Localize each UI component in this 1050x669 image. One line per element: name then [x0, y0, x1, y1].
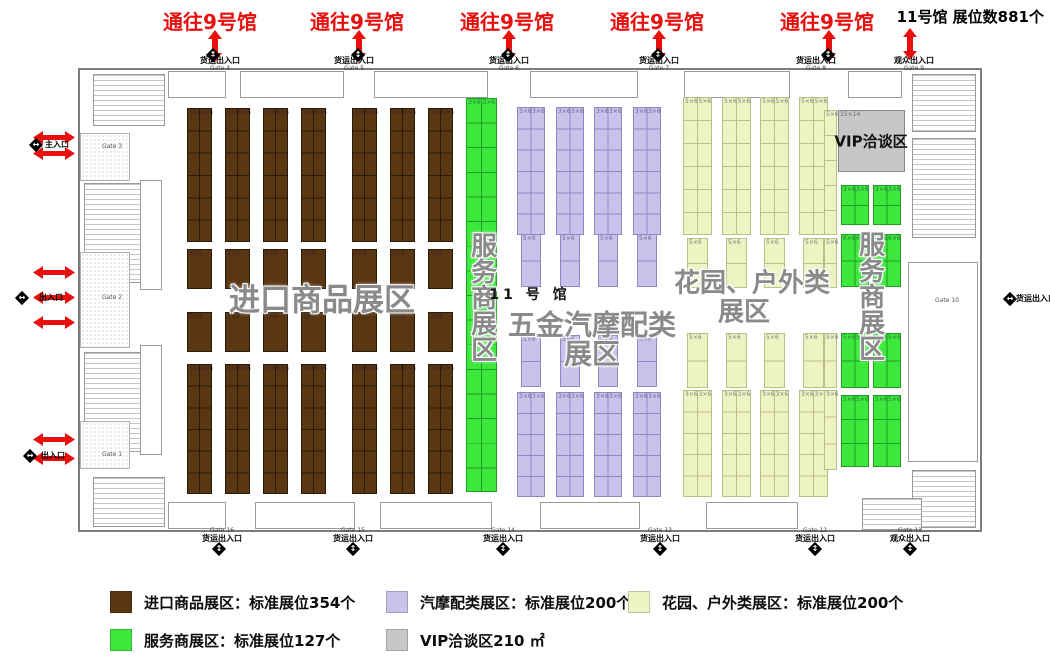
- gate-diamond-icon: ↕: [496, 542, 510, 556]
- booth-size-label: 5×6: [888, 335, 901, 341]
- booth-block: 3×63×6: [225, 364, 250, 494]
- wall-structure: [540, 502, 640, 529]
- booth-size-label: 5×6: [826, 112, 839, 118]
- gate-number: Gate 3: [102, 144, 122, 150]
- gate-diamond-icon: ↔: [1003, 292, 1017, 306]
- booth-size-label: 5×6: [856, 397, 869, 403]
- booth-size-label: 3×6: [738, 392, 751, 398]
- booth-size-label: 3×6: [558, 109, 571, 115]
- wall-structure: [140, 345, 162, 455]
- booth-size-label: 5×6: [815, 99, 828, 105]
- booth-block: 5×6: [803, 333, 824, 388]
- zone-label: 进口商品展区: [229, 285, 415, 318]
- booth-block: 5×6: [637, 335, 657, 387]
- booth-size-label: 5×6: [689, 240, 702, 246]
- zone-label: 花园、户外类: [674, 270, 830, 297]
- booth-block: 3×63×6: [301, 364, 326, 494]
- booth-size-label: 5×6: [766, 240, 779, 246]
- booth-size-label: 5×6: [888, 397, 901, 403]
- wall-structure: [848, 71, 902, 98]
- booth-size-label: 5×6: [523, 236, 536, 242]
- gate-number: Gate 6: [499, 66, 519, 72]
- booth-size-label: 3×6: [315, 110, 328, 116]
- booth-size-label: 3×9: [189, 314, 202, 320]
- booth-block: 3×63×6: [633, 392, 661, 497]
- zone-label: 服务商展区: [855, 231, 882, 361]
- zone-label: VIP洽谈区: [834, 131, 907, 152]
- booth-block: 3×63×6: [760, 390, 789, 497]
- booth-size-label: 5×6: [826, 240, 839, 246]
- wall-structure: [93, 477, 165, 527]
- booth-size-label: 3×6: [571, 394, 584, 400]
- booth-block: 3×63×6: [187, 364, 212, 494]
- booth-block: 5×65×6: [760, 97, 789, 235]
- booth-size-label: 3×6: [558, 394, 571, 400]
- wall-structure: [912, 138, 976, 238]
- booth-block: 3×63×6: [225, 108, 250, 242]
- booth-size-label: 3×9: [392, 251, 405, 257]
- booth-size-label: 3×9: [354, 251, 367, 257]
- booth-block: 3×63×6: [390, 364, 415, 494]
- legend-label: VIP洽谈区210 ㎡: [420, 630, 545, 651]
- booth-size-label: 5×6: [826, 335, 839, 341]
- booth-size-label: 3×6: [776, 392, 789, 398]
- booth-block: 3×63×6: [263, 108, 288, 242]
- booth-block: 3×63×6: [683, 390, 712, 497]
- gate-number: Gate 4: [210, 66, 230, 72]
- booth-block: 5×6: [824, 333, 837, 388]
- gate-label: 货运出入口: [640, 535, 680, 543]
- booth-size-label: 5×6: [685, 99, 698, 105]
- gate-label: 观众出入口: [894, 57, 934, 65]
- booth-size-label: 3×9: [265, 251, 278, 257]
- gate-number: Gate 2: [102, 295, 122, 301]
- booth-size-label: 3×6: [762, 392, 775, 398]
- booth-size-label: 3×6: [648, 394, 661, 400]
- booth-size-label: 5×6: [801, 99, 814, 105]
- booth-block: 3×63×6: [556, 392, 584, 497]
- booth-size-label: 15×14: [840, 112, 860, 118]
- gate-diamond-icon: ↔: [15, 291, 29, 305]
- booth-size-label: 5×6: [843, 397, 856, 403]
- legend-label: 花园、户外类展区：标准展位200个: [662, 592, 903, 613]
- booth-size-label: 3×6: [483, 100, 496, 106]
- legend-item: 服务商展区：标准展位127个: [110, 629, 340, 651]
- booth-size-label: 3×6: [826, 392, 839, 398]
- booth-size-label: 5×6: [875, 397, 888, 403]
- booth-size-label: 3×6: [635, 394, 648, 400]
- gate-label: 货运出入口: [639, 57, 679, 65]
- legend-swatch-service: [110, 629, 132, 651]
- gate-hatch: [80, 421, 130, 469]
- wall-structure: [706, 502, 798, 529]
- legend-swatch-garden: [628, 591, 650, 613]
- wall-structure: [255, 502, 355, 529]
- booth-block: 3×63×6: [428, 108, 453, 242]
- legend-item: 进口商品展区：标准展位354个: [110, 591, 355, 613]
- gate-diamond-icon: ↕: [808, 542, 822, 556]
- booth-size-label: 3×6: [532, 109, 545, 115]
- booth-size-label: 3×6: [519, 109, 532, 115]
- booth-block: 3×63×6: [352, 108, 377, 242]
- booth-size-label: 5×6: [699, 99, 712, 105]
- wall-structure: [912, 74, 976, 132]
- booth-size-label: 3×6: [532, 394, 545, 400]
- booth-block: 3×63×6: [594, 107, 622, 235]
- booth-size-label: 3×6: [442, 110, 455, 116]
- zone-label: 展区: [718, 299, 770, 326]
- gate-hatch: [80, 133, 130, 181]
- booth-size-label: 6×6: [888, 236, 901, 242]
- booth-block: 3×63×6: [187, 108, 212, 242]
- booth-size-label: 3×6: [201, 110, 214, 116]
- booth-block: 3×63×6: [263, 364, 288, 494]
- booth-block: 3×63×6: [517, 392, 545, 497]
- booth-size-label: 5×6: [639, 236, 652, 242]
- gate-label: 货运出入口: [489, 57, 529, 65]
- booth-size-label: 3×6: [801, 392, 814, 398]
- booth-size-label: 3×6: [519, 394, 532, 400]
- booth-size-label: 3×6: [201, 366, 214, 372]
- booth-block: 5×65×6: [841, 395, 869, 467]
- booth-size-label: 5×6: [762, 99, 775, 105]
- gate-label: 货运出入口: [333, 535, 373, 543]
- zone-label: 11 号 馆: [489, 284, 570, 304]
- booth-size-label: 5×6: [776, 99, 789, 105]
- gate-label: 货运出入口: [795, 535, 835, 543]
- booth-block: 3×9: [187, 312, 212, 352]
- booth-size-label: 5×6: [766, 335, 779, 341]
- booth-size-label: 3×6: [366, 110, 379, 116]
- booth-size-label: 3×6: [843, 187, 856, 193]
- gate-label: 货运出入口: [202, 535, 242, 543]
- legend-label: 服务商展区：标准展位127个: [144, 630, 340, 651]
- wall-structure: [240, 71, 344, 98]
- booth-size-label: 3×6: [596, 394, 609, 400]
- gate-label: 货运出入口: [796, 57, 836, 65]
- booth-block: 5×6: [560, 234, 580, 287]
- booth-size-label: 3×6: [609, 109, 622, 115]
- entrance-label: 货运出入口: [1016, 295, 1050, 303]
- booth-size-label: 5×6: [728, 240, 741, 246]
- booth-size-label: 3×6: [888, 187, 901, 193]
- booth-size-label: 3×9: [227, 251, 240, 257]
- hall-title: 11号馆 展位数881个: [897, 6, 1044, 27]
- booth-size-label: 5×6: [805, 240, 818, 246]
- red-double-arrow-icon: [33, 316, 75, 329]
- wall-structure: [140, 180, 162, 290]
- booth-size-label: 3×6: [404, 110, 417, 116]
- booth-block: 3×63×6: [517, 107, 545, 235]
- booth-block: 3×63×6: [556, 107, 584, 235]
- booth-block: 3×63×6: [301, 108, 326, 242]
- booth-size-label: 5×6: [724, 99, 737, 105]
- exhibition-floor-plan: 11号馆 展位数881个 进口商品展区：标准展位354个 汽摩配类展区：标准展位…: [0, 0, 1050, 669]
- wall-structure: [374, 71, 488, 98]
- booth-size-label: 5×6: [738, 99, 751, 105]
- wall-structure: [380, 502, 492, 529]
- booth-block: 3×63×6: [633, 107, 661, 235]
- legend-item: 汽摩配类展区：标准展位200个: [386, 591, 631, 613]
- booth-size-label: 3×6: [685, 392, 698, 398]
- gate-number: Gate 8: [806, 66, 826, 72]
- booth-size-label: 3×6: [315, 366, 328, 372]
- booth-block: 3×63×6: [594, 392, 622, 497]
- booth-block: 3×9: [428, 249, 453, 289]
- booth-block: 3×63×6: [722, 390, 751, 497]
- booth-block: 5×6: [637, 234, 657, 287]
- booth-block: 5×6: [824, 110, 837, 235]
- wall-structure: [862, 498, 922, 530]
- gate-diamond-icon: ↔: [29, 138, 43, 152]
- booth-size-label: 3×6: [366, 366, 379, 372]
- zone-label: 五金汽摩配类: [508, 310, 676, 339]
- booth-size-label: 3×6: [468, 100, 481, 106]
- booth-size-label: 3×9: [430, 251, 443, 257]
- gate-diamond-icon: ↕: [346, 542, 360, 556]
- booth-size-label: 5×6: [728, 335, 741, 341]
- wall-structure: [168, 502, 226, 529]
- wall-structure: [93, 74, 165, 126]
- booth-block: 3×6: [824, 390, 837, 470]
- booth-size-label: 3×9: [303, 251, 316, 257]
- booth-size-label: 3×6: [648, 109, 661, 115]
- booth-block: 3×63×6: [841, 185, 869, 225]
- booth-size-label: 3×6: [724, 392, 737, 398]
- booth-size-label: 3×9: [189, 251, 202, 257]
- booth-block: 5×65×6: [683, 97, 712, 235]
- gate-number: Gate 5: [344, 66, 364, 72]
- gate-label: 观众出入口: [890, 535, 930, 543]
- booth-size-label: 3×6: [875, 187, 888, 193]
- booth-size-label: 3×6: [609, 394, 622, 400]
- gate-label: 货运出入口: [200, 57, 240, 65]
- entrance-label: 主入口: [45, 141, 69, 149]
- booth-size-label: 5×6: [689, 335, 702, 341]
- booth-size-label: 3×6: [239, 110, 252, 116]
- gate-number: Gate 1: [102, 452, 122, 458]
- gate-diamond-icon: ↕: [653, 542, 667, 556]
- booth-size-label: 3×6: [277, 366, 290, 372]
- booth-block: 3×9: [187, 249, 212, 289]
- booth-size-label: 3×6: [596, 109, 609, 115]
- wall-structure: [684, 71, 790, 98]
- booth-block: 5×6: [726, 333, 747, 388]
- legend-swatch-vip: [386, 629, 408, 651]
- wall-structure: [908, 262, 978, 462]
- legend-item: VIP洽谈区210 ㎡: [386, 629, 545, 651]
- red-double-arrow-icon: [33, 433, 75, 446]
- booth-block: 3×63×6: [428, 364, 453, 494]
- booth-block: 5×6: [521, 335, 541, 387]
- zone-label: 展区: [564, 339, 620, 368]
- booth-size-label: 3×6: [404, 366, 417, 372]
- booth-size-label: 5×6: [805, 335, 818, 341]
- entrance-label: 出入口: [41, 452, 65, 460]
- gate-diamond-icon: ↕: [903, 542, 917, 556]
- booth-block: 5×6: [521, 234, 541, 287]
- gate-number: Gate 7: [649, 66, 669, 72]
- gate-diamond-icon: ↔: [23, 449, 37, 463]
- legend-swatch-auto: [386, 591, 408, 613]
- booth-size-label: 3×6: [699, 392, 712, 398]
- entrance-label: 出入口: [39, 294, 63, 302]
- booth-size-label: 3×6: [571, 109, 584, 115]
- red-double-arrow-icon: [33, 266, 75, 279]
- legend-label: 进口商品展区：标准展位354个: [144, 592, 355, 613]
- booth-block: 5×6: [687, 333, 708, 388]
- wall-structure: [530, 71, 638, 98]
- booth-size-label: 3×6: [442, 366, 455, 372]
- gate-diamond-icon: ↕: [212, 542, 226, 556]
- legend-item: 花园、户外类展区：标准展位200个: [628, 591, 903, 613]
- gate-number: Gate 9: [904, 66, 924, 72]
- booth-block: 5×65×6: [722, 97, 751, 235]
- gate-number: Gate 10: [935, 298, 959, 304]
- booth-block: 3×63×6: [352, 364, 377, 494]
- booth-block: 5×65×6: [873, 395, 901, 467]
- booth-block: 3×63×6: [873, 185, 901, 225]
- booth-block: 5×6: [764, 333, 785, 388]
- booth-size-label: 5×6: [562, 236, 575, 242]
- booth-size-label: 3×9: [430, 314, 443, 320]
- legend-label: 汽摩配类展区：标准展位200个: [420, 592, 631, 613]
- wall-structure: [168, 71, 226, 98]
- booth-size-label: 3×6: [239, 366, 252, 372]
- gate-label: 货运出入口: [483, 535, 523, 543]
- booth-size-label: 3×6: [856, 187, 869, 193]
- booth-size-label: 3×6: [277, 110, 290, 116]
- booth-block: 3×9: [428, 312, 453, 352]
- booth-size-label: 5×6: [600, 236, 613, 242]
- booth-block: 3×63×6: [390, 108, 415, 242]
- booth-size-label: 3×6: [635, 109, 648, 115]
- gate-label: 货运出入口: [334, 57, 374, 65]
- legend-swatch-import: [110, 591, 132, 613]
- booth-block: 5×6: [598, 234, 618, 287]
